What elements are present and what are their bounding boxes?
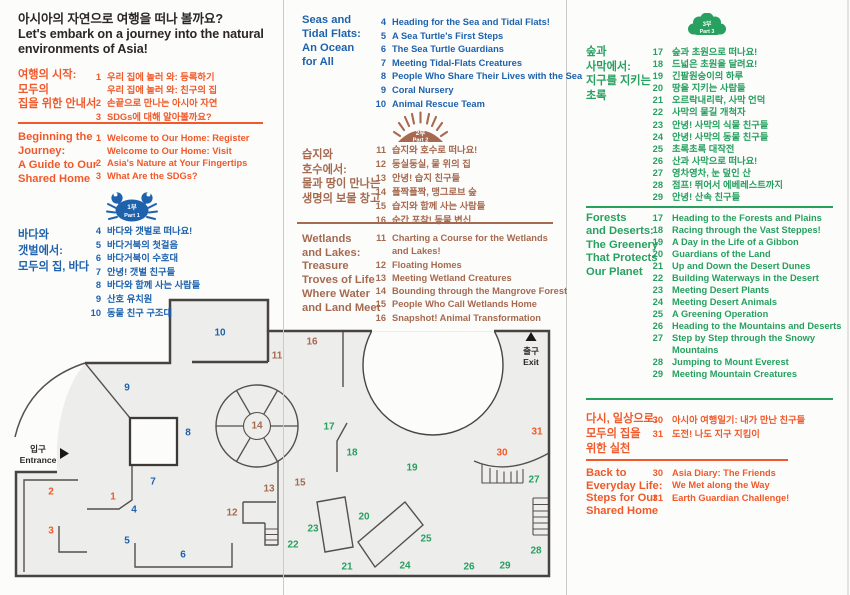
list-item: 우리 집에 놀러 와: 친구의 집 bbox=[77, 84, 217, 97]
title-en-2: environments of Asia! bbox=[18, 42, 264, 57]
list-item: 31도전! 나도 지구 지킴이 bbox=[633, 427, 805, 441]
map-marker-24: 24 bbox=[399, 561, 411, 572]
map-marker-11: 11 bbox=[272, 351, 283, 362]
list-item: 24Meeting Desert Animals bbox=[633, 296, 841, 308]
list-item: 8People Who Share Their Lives with the S… bbox=[362, 70, 582, 84]
list-item: 9Coral Nursery bbox=[362, 84, 582, 98]
divider-part3 bbox=[586, 206, 833, 208]
divider-intro bbox=[18, 122, 263, 124]
heading-line: 위한 실천 bbox=[586, 442, 716, 457]
page-title: 아시아의 자연으로 여행을 떠나 볼까요? Let's embark on a … bbox=[18, 12, 264, 56]
svg-text:입구: 입구 bbox=[30, 443, 46, 454]
list-intro-en: 1Welcome to Our Home: RegisterWelcome to… bbox=[77, 132, 249, 182]
list-item: 8바다와 함께 사는 사람들 bbox=[77, 279, 200, 293]
list-item: 3What Are the SDGs? bbox=[77, 170, 249, 183]
list-item: 11습지와 호수로 떠나요! bbox=[362, 144, 485, 158]
list-part2-en: 11Charting a Course for the Wetlandsand … bbox=[362, 232, 567, 325]
list-item: 4바다와 갯벌로 떠나요! bbox=[77, 225, 200, 239]
map-marker-18: 18 bbox=[346, 448, 358, 459]
part3-bush-icon: 3부 Part 3 bbox=[687, 13, 727, 39]
list-item: 13안녕! 습지 친구들 bbox=[362, 172, 485, 186]
divider-outro bbox=[586, 459, 788, 461]
map-marker-1: 1 bbox=[110, 492, 116, 503]
list-item: 19긴팔원숭이의 하루 bbox=[633, 70, 783, 82]
list-intro-kr: 1우리 집에 놀러 와: 등록하기우리 집에 놀러 와: 친구의 집2손끝으로 … bbox=[77, 71, 217, 124]
list-item: We Met along the Way bbox=[633, 479, 789, 491]
map-marker-29: 29 bbox=[499, 561, 511, 572]
svg-text:출구: 출구 bbox=[523, 345, 539, 356]
list-item: 6바다거북이 수호대 bbox=[77, 252, 200, 266]
list-item: 23안녕! 사막의 식물 친구들 bbox=[633, 119, 783, 131]
map-marker-27: 27 bbox=[528, 475, 540, 486]
list-item: 28점프! 뛰어서 에베레스트까지 bbox=[633, 179, 783, 191]
list-item: 17숲과 초원으로 떠나요! bbox=[633, 46, 783, 58]
map-marker-2: 2 bbox=[48, 487, 54, 498]
list-outro-en: 30Asia Diary: The FriendsWe Met along th… bbox=[633, 467, 789, 504]
map-marker-22: 22 bbox=[287, 540, 299, 551]
map-marker-16: 16 bbox=[306, 337, 318, 348]
list-item: 19A Day in the Life of a Gibbon bbox=[633, 236, 841, 248]
map-marker-14: 14 bbox=[251, 421, 263, 432]
list-item: 29Meeting Mountain Creatures bbox=[633, 368, 841, 380]
map-marker-8: 8 bbox=[185, 428, 191, 439]
divider-part2 bbox=[297, 222, 553, 224]
list-item: 27영차영차, 눈 덮인 산 bbox=[633, 167, 783, 179]
map-marker-3: 3 bbox=[48, 526, 54, 537]
svg-text:Part 3: Part 3 bbox=[700, 29, 715, 35]
map-marker-20: 20 bbox=[358, 512, 370, 523]
list-item: 25초록초록 대작전 bbox=[633, 143, 783, 155]
list-item: 22사막의 물길 개척자 bbox=[633, 106, 783, 118]
list-item: 17Heading to the Forests and Plains bbox=[633, 212, 841, 224]
map-marker-7: 7 bbox=[150, 477, 156, 488]
list-item: 11Charting a Course for the Wetlands bbox=[362, 232, 567, 245]
list-item: 1우리 집에 놀러 와: 등록하기 bbox=[77, 71, 217, 84]
list-item: Mountains bbox=[633, 344, 841, 356]
map-marker-31: 31 bbox=[531, 427, 543, 438]
list-item: 12둥실둥실, 물 위의 집 bbox=[362, 158, 485, 172]
heading-line: Shared Home bbox=[586, 505, 716, 518]
map-marker-15: 15 bbox=[294, 478, 306, 489]
map-marker-4: 4 bbox=[131, 505, 137, 516]
map-marker-12: 12 bbox=[226, 508, 238, 519]
list-item: 20땅을 지키는 사람들 bbox=[633, 82, 783, 94]
svg-text:Entrance: Entrance bbox=[20, 455, 57, 465]
map-marker-26: 26 bbox=[463, 562, 475, 573]
list-item: 5A Sea Turtle's First Steps bbox=[362, 30, 582, 44]
map-marker-21: 21 bbox=[341, 562, 353, 573]
map-marker-5: 5 bbox=[124, 536, 130, 547]
list-item: 27Step by Step through the Snowy bbox=[633, 332, 841, 344]
list-item: 14폴짝폴짝, 맹그로브 숲 bbox=[362, 186, 485, 200]
list-outro-kr: 30아시아 여행일기: 내가 만난 친구들31도전! 나도 지구 지킴이 bbox=[633, 413, 805, 442]
list-item: 12Floating Homes bbox=[362, 259, 567, 272]
svg-text:2부: 2부 bbox=[416, 128, 426, 137]
svg-text:3부: 3부 bbox=[703, 20, 712, 28]
map-marker-30: 30 bbox=[496, 448, 508, 459]
list-item: 10동물 친구 구조대 bbox=[77, 307, 200, 321]
list-item: 21Up and Down the Desert Dunes bbox=[633, 260, 841, 272]
list-item: and Lakes! bbox=[362, 245, 567, 258]
svg-text:Exit: Exit bbox=[523, 357, 539, 367]
list-item: 20Guardians of the Land bbox=[633, 248, 841, 260]
divider-outro-top bbox=[586, 398, 833, 400]
list-item: 26Heading to the Mountains and Deserts bbox=[633, 320, 841, 332]
list-item: 25A Greening Operation bbox=[633, 308, 841, 320]
svg-text:Part 2: Part 2 bbox=[413, 138, 429, 144]
list-item: 24안녕! 사막의 동물 친구들 bbox=[633, 131, 783, 143]
part1-crab-icon: 1부 Part 1 bbox=[104, 190, 160, 224]
list-item: 7안녕! 갯벌 친구들 bbox=[77, 266, 200, 280]
list-item: 29안녕! 산속 친구들 bbox=[633, 191, 783, 203]
list-item: 28Jumping to Mount Everest bbox=[633, 356, 841, 368]
list-item: 9산호 유치원 bbox=[77, 293, 200, 307]
list-item: 13Meeting Wetland Creatures bbox=[362, 272, 567, 285]
map-marker-23: 23 bbox=[307, 524, 319, 535]
list-part1-kr: 4바다와 갯벌로 떠나요!5바다거북의 첫걸음6바다거북이 수호대7안녕! 갯벌… bbox=[77, 225, 200, 320]
list-item: 26산과 사막으로 떠나요! bbox=[633, 155, 783, 167]
map-marker-6: 6 bbox=[180, 550, 186, 561]
list-item: 31Earth Guardian Challenge! bbox=[633, 492, 789, 504]
list-item: Welcome to Our Home: Visit bbox=[77, 145, 249, 158]
list-item: 7Meeting Tidal-Flats Creatures bbox=[362, 57, 582, 71]
map-marker-10: 10 bbox=[214, 328, 226, 339]
list-item: 30아시아 여행일기: 내가 만난 친구들 bbox=[633, 413, 805, 427]
title-en: Let's embark on a journey into the natur… bbox=[18, 27, 264, 42]
map-marker-9: 9 bbox=[124, 383, 130, 394]
map-marker-19: 19 bbox=[406, 463, 418, 474]
map-marker-17: 17 bbox=[323, 422, 335, 433]
title-kr: 아시아의 자연으로 여행을 떠나 볼까요? bbox=[18, 12, 264, 27]
list-item: 21오르락내리락, 사막 언덕 bbox=[633, 94, 783, 106]
map-marker-25: 25 bbox=[420, 534, 432, 545]
map-marker-13: 13 bbox=[263, 484, 275, 495]
list-item: 18Racing through the Vast Steppes! bbox=[633, 224, 841, 236]
list-item: 18드넓은 초원을 달려요! bbox=[633, 58, 783, 70]
list-item: 30Asia Diary: The Friends bbox=[633, 467, 789, 479]
list-item: 1Welcome to Our Home: Register bbox=[77, 132, 249, 145]
list-item: 5바다거북의 첫걸음 bbox=[77, 239, 200, 253]
map-marker-28: 28 bbox=[530, 546, 542, 557]
list-part3-en: 17Heading to the Forests and Plains18Rac… bbox=[633, 212, 841, 380]
list-item: 15People Who Call Wetlands Home bbox=[362, 298, 567, 311]
part2-mangrove-icon: 2부 Part 2 bbox=[392, 110, 449, 144]
list-part1-en: 4Heading for the Sea and Tidal Flats!5A … bbox=[362, 16, 582, 111]
list-item: 16순간 포착! 동물 변신 bbox=[362, 214, 485, 228]
list-item: 15습지와 함께 사는 사람들 bbox=[362, 200, 485, 214]
list-part3-kr: 17숲과 초원으로 떠나요!18드넓은 초원을 달려요!19긴팔원숭이의 하루2… bbox=[633, 46, 783, 203]
list-item: 2손끝으로 만나는 아시아 자연 bbox=[77, 97, 217, 110]
list-item: 4Heading for the Sea and Tidal Flats! bbox=[362, 16, 582, 30]
svg-text:1부: 1부 bbox=[127, 202, 137, 211]
list-item: 23Meeting Desert Plants bbox=[633, 284, 841, 296]
square-room bbox=[130, 418, 177, 465]
list-item: 2Asia's Nature at Your Fingertips bbox=[77, 157, 249, 170]
list-item: 6The Sea Turtle Guardians bbox=[362, 43, 582, 57]
list-item: 16Snapshot! Animal Transformation bbox=[362, 312, 567, 325]
list-item: 14Bounding through the Mangrove Forest bbox=[362, 285, 567, 298]
svg-text:Part 1: Part 1 bbox=[124, 213, 140, 219]
list-part2-kr: 11습지와 호수로 떠나요!12둥실둥실, 물 위의 집13안녕! 습지 친구들… bbox=[362, 144, 485, 227]
list-item: 22Building Waterways in the Desert bbox=[633, 272, 841, 284]
